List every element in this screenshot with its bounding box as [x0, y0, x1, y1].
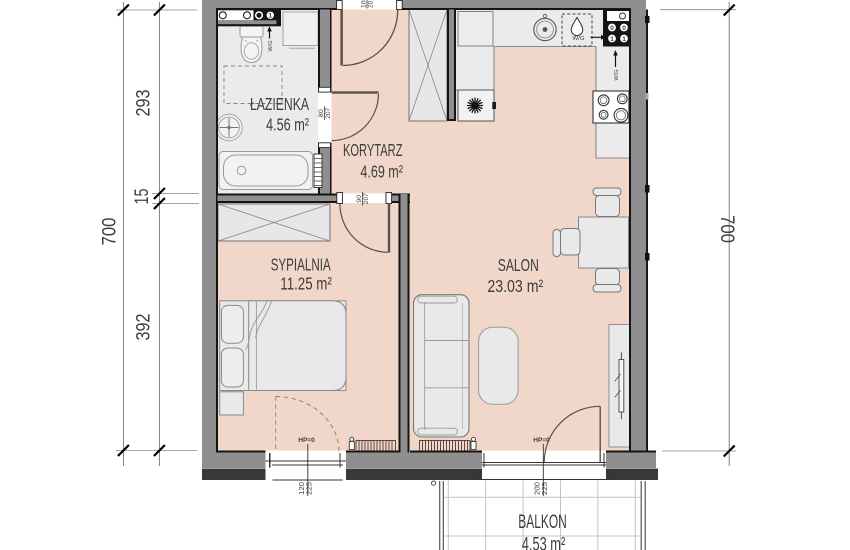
svg-text:0: 0	[622, 25, 626, 32]
svg-text:100: 100	[360, 0, 367, 8]
svg-text:1: 1	[622, 36, 626, 43]
svg-text:700: 700	[716, 215, 737, 243]
svg-text:23.03 m²: 23.03 m²	[487, 276, 543, 296]
svg-text:225: 225	[542, 482, 549, 495]
svg-text:4.56 m²: 4.56 m²	[266, 115, 309, 135]
svg-text:200: 200	[534, 482, 541, 495]
svg-text:1: 1	[610, 36, 614, 43]
svg-text:207: 207	[325, 107, 332, 119]
svg-text:293: 293	[134, 90, 155, 117]
svg-text:0: 0	[610, 25, 614, 32]
svg-text:11.25 m²: 11.25 m²	[280, 274, 332, 294]
svg-text:392: 392	[134, 314, 155, 341]
svg-text:207: 207	[363, 193, 370, 205]
svg-text:4.53 m²: 4.53 m²	[522, 534, 566, 550]
svg-text:4.69 m²: 4.69 m²	[360, 161, 403, 181]
svg-text:HP=0: HP=0	[533, 437, 550, 444]
svg-text:W/G: W/G	[614, 70, 620, 81]
svg-text:W/G: W/G	[268, 41, 274, 52]
svg-text:W/G: W/G	[573, 36, 585, 42]
svg-text:SALON: SALON	[498, 255, 539, 275]
svg-text:90: 90	[356, 194, 363, 203]
svg-text:15: 15	[132, 189, 153, 205]
svg-text:ŁAZIENKA: ŁAZIENKA	[250, 94, 309, 114]
svg-text:HP=0: HP=0	[298, 437, 315, 444]
svg-text:1: 1	[268, 13, 272, 20]
svg-text:225: 225	[306, 482, 313, 495]
svg-text:80: 80	[318, 109, 325, 118]
svg-text:BALKON: BALKON	[518, 511, 567, 533]
svg-text:SYPIALNIA: SYPIALNIA	[271, 254, 331, 274]
svg-text:207: 207	[368, 0, 375, 8]
svg-text:120: 120	[299, 482, 306, 495]
svg-text:700: 700	[100, 218, 121, 246]
svg-text:KORYTARZ: KORYTARZ	[343, 140, 403, 160]
